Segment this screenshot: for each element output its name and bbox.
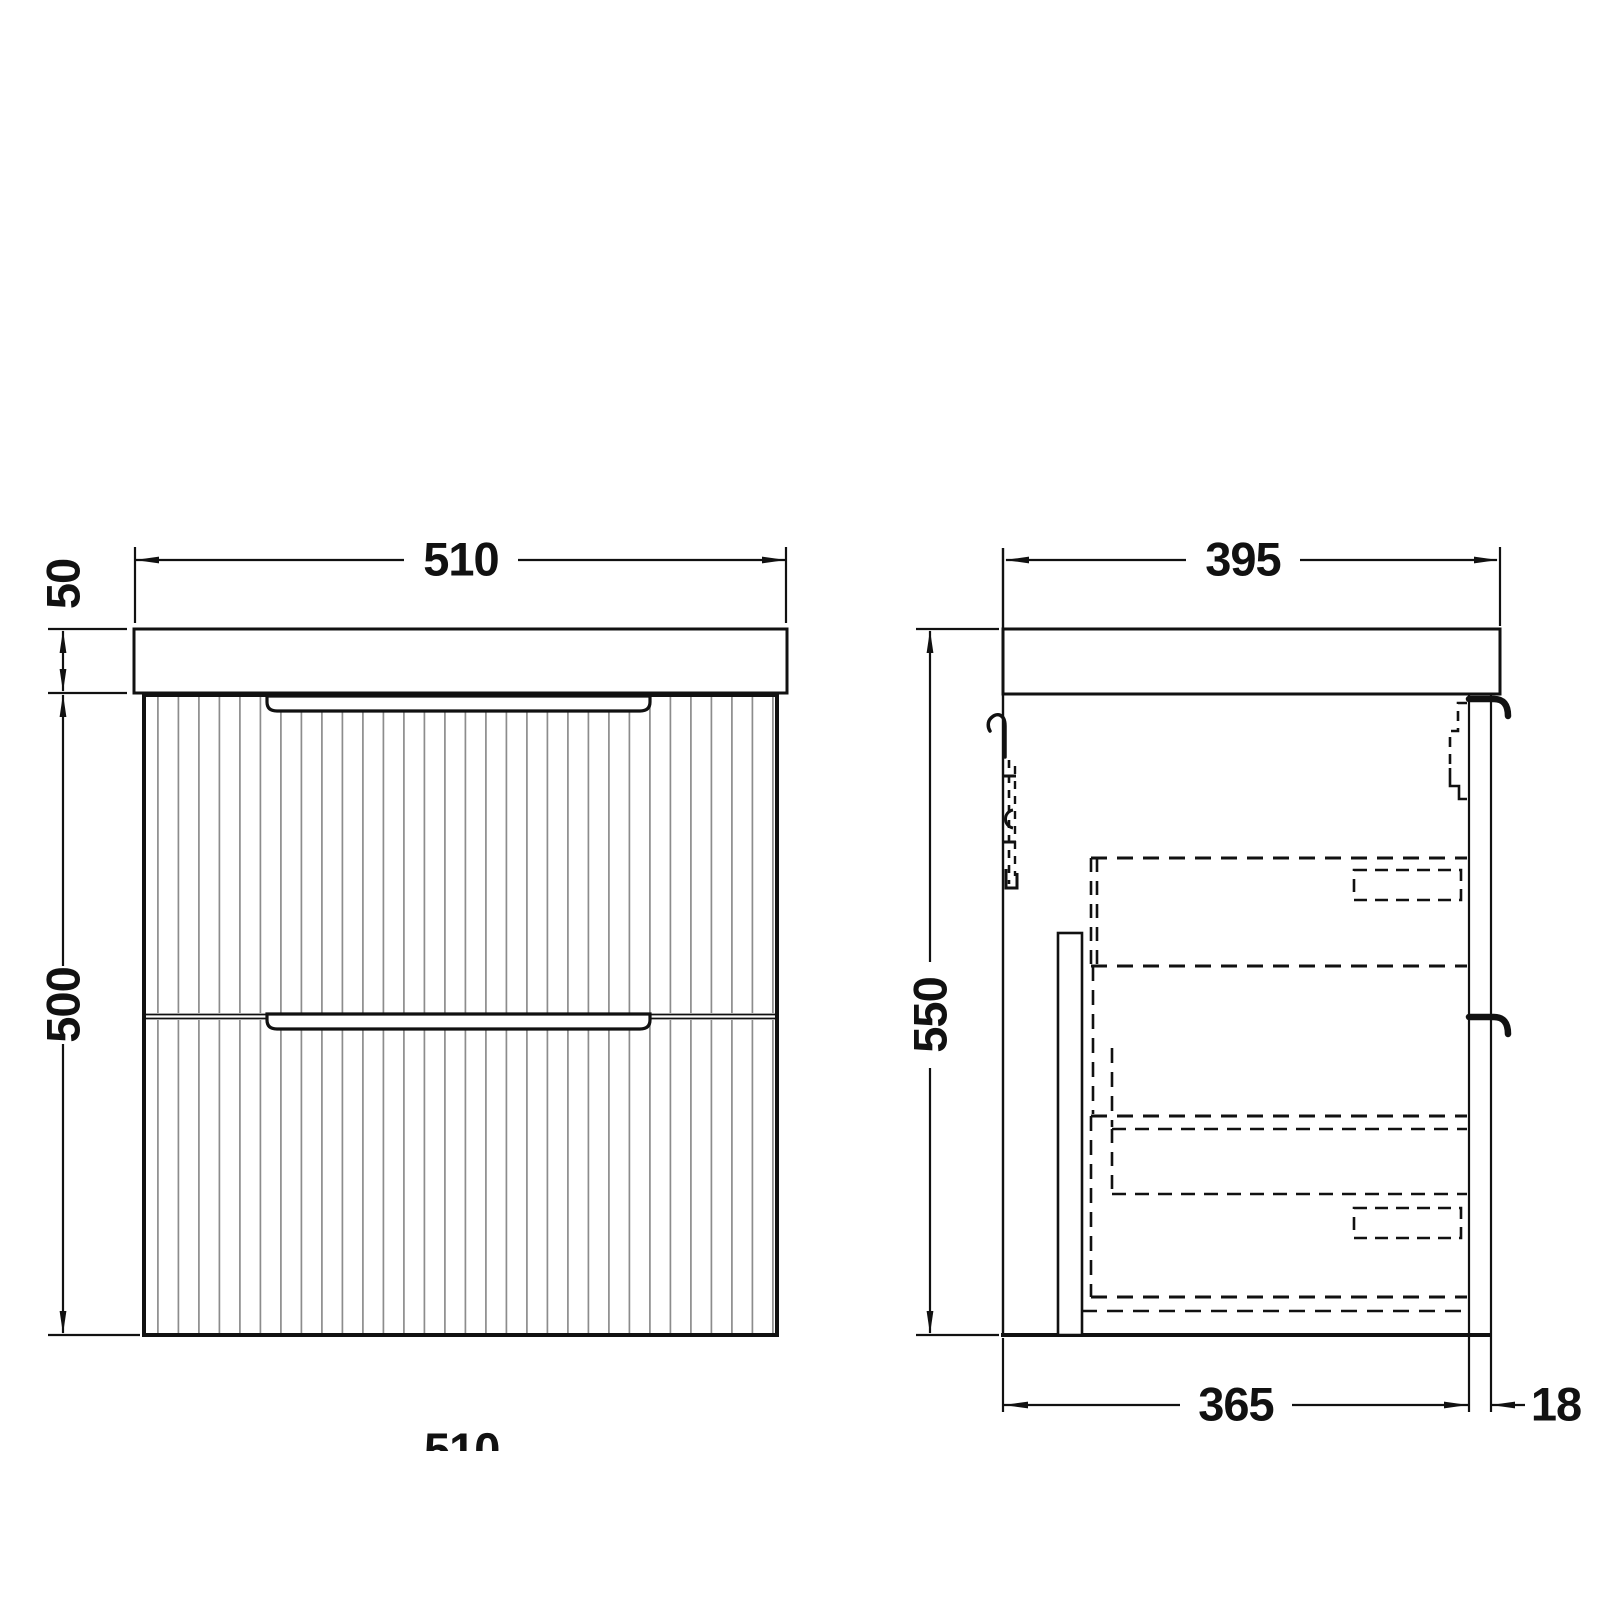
- front-cabinet: [144, 695, 777, 1335]
- front-countertop: [134, 629, 787, 693]
- front-top-drawer-fluting: [146, 697, 775, 1013]
- side-panel-thickness-label: 18: [1531, 1378, 1581, 1431]
- side-height-label: 550: [904, 977, 957, 1052]
- vanity-technical-drawing: 510 50 500: [0, 0, 1600, 1600]
- front-counter-height-label: 50: [37, 559, 90, 609]
- front-bottom-drawer-handle: [267, 1014, 650, 1029]
- front-width-label: 510: [423, 533, 498, 586]
- front-cabinet-height-label: 500: [37, 967, 90, 1042]
- technical-drawing-page: 510 50 500: [0, 0, 1600, 1600]
- front-view: 510 50 500: [37, 533, 788, 1477]
- side-depth-label: 395: [1205, 533, 1280, 586]
- side-inner-depth-label: 365: [1198, 1378, 1273, 1431]
- front-bottom-drawer-fluting: [146, 1020, 775, 1333]
- side-countertop: [1003, 629, 1500, 694]
- side-hanging-rail: [1058, 933, 1082, 1335]
- front-top-drawer-handle: [267, 696, 650, 711]
